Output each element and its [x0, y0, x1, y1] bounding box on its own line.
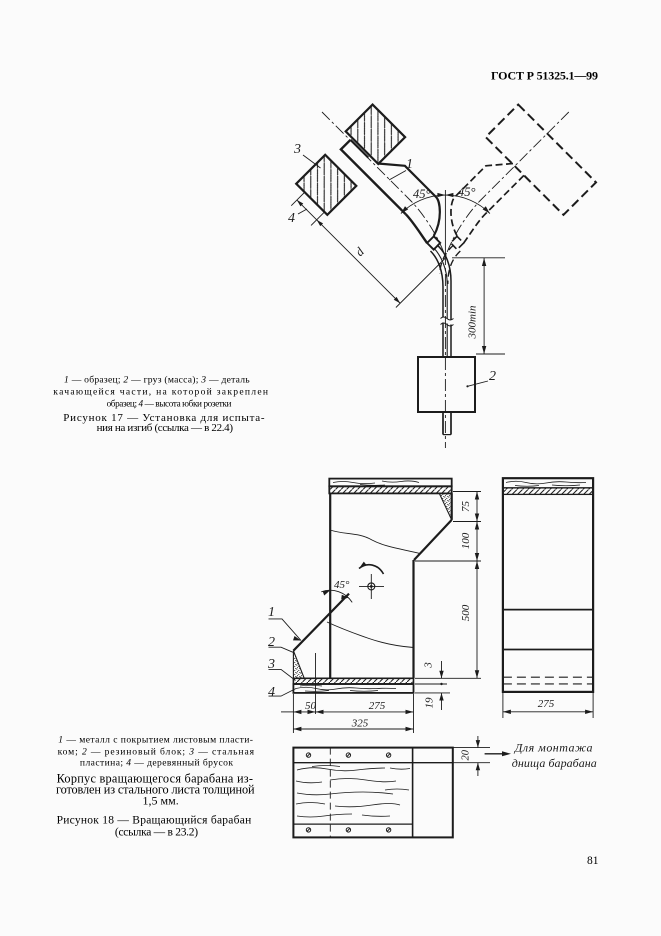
- svg-text:Рисунок 18 — Вращающийся бар: Рисунок 18 — Вращающийся барабан: [57, 815, 252, 827]
- svg-text:4: 4: [288, 211, 295, 226]
- svg-text:1 — образец; 2 — груз (масса);: 1 — образец; 2 — груз (масса); 3 — детал…: [64, 374, 250, 385]
- svg-text:2: 2: [268, 635, 275, 650]
- svg-text:(ссылка — в 23.2): (ссылка — в 23.2): [115, 826, 198, 838]
- svg-text:500: 500: [460, 604, 472, 621]
- svg-text:45°: 45°: [413, 187, 431, 201]
- svg-text:качающейся части, на которой з: качающейся части, на которой закреплен: [53, 387, 268, 398]
- svg-text:ком; 2 — резиновый блок; 3 —: ком; 2 — резиновый блок; 3 — стальная: [58, 747, 255, 758]
- svg-text:3: 3: [423, 662, 435, 669]
- svg-text:1,5 мм.: 1,5 мм.: [143, 794, 179, 808]
- svg-text:275: 275: [369, 700, 386, 712]
- svg-text:81: 81: [587, 855, 599, 867]
- svg-text:3: 3: [293, 142, 301, 157]
- svg-text:образец; 4 — высота юбки розет: образец; 4 — высота юбки розетки: [107, 398, 232, 408]
- svg-text:d: d: [352, 244, 367, 259]
- svg-text:50: 50: [305, 700, 317, 712]
- svg-text:19: 19: [424, 697, 436, 709]
- svg-text:1: 1: [406, 157, 413, 172]
- svg-text:пластина; 4 — деревянный брусо: пластина; 4 — деревянный брусок: [80, 757, 233, 768]
- svg-text:45°: 45°: [334, 579, 350, 591]
- svg-text:1 — металл с покрытием листовы: 1 — металл с покрытием листовым пласти-: [58, 734, 253, 745]
- svg-text:4: 4: [268, 685, 275, 700]
- svg-text:300min: 300min: [467, 305, 479, 340]
- svg-text:1: 1: [268, 605, 275, 620]
- svg-text:20: 20: [461, 749, 472, 760]
- svg-text:45°: 45°: [458, 185, 476, 199]
- svg-text:75: 75: [460, 501, 472, 513]
- svg-text:325: 325: [351, 718, 369, 730]
- svg-text:Для монтажа: Для монтажа: [514, 741, 593, 755]
- svg-text:днища барабана: днища барабана: [512, 756, 597, 770]
- svg-text:2: 2: [489, 369, 496, 384]
- svg-text:100: 100: [460, 532, 472, 549]
- svg-text:ния на изгиб (ссылка — в 22.4): ния на изгиб (ссылка — в 22.4): [97, 422, 234, 434]
- svg-text:ГОСТ Р 51325.1—99: ГОСТ Р 51325.1—99: [491, 69, 598, 83]
- svg-text:275: 275: [538, 698, 555, 710]
